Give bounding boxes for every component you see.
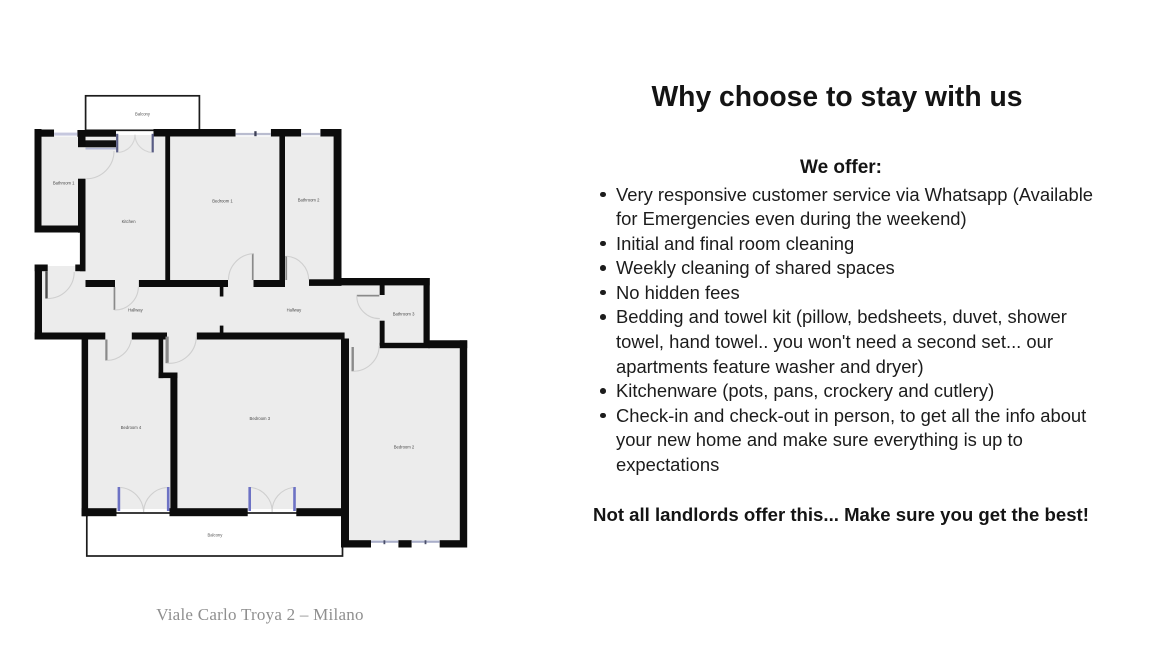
svg-text:Kitchen: Kitchen [122,219,137,224]
svg-text:Balcony: Balcony [207,533,223,538]
svg-text:Balcony: Balcony [135,112,151,117]
svg-text:Bathroom 3: Bathroom 3 [393,312,415,317]
svg-text:Bathroom 1: Bathroom 1 [53,181,75,186]
svg-text:Hallway: Hallway [128,308,144,313]
svg-text:Bedroom 3: Bedroom 3 [250,416,271,421]
svg-text:Hallway: Hallway [287,308,303,313]
svg-text:Bathroom 2: Bathroom 2 [298,198,320,203]
svg-text:Bedroom 1: Bedroom 1 [212,199,233,204]
svg-text:Bedroom 4: Bedroom 4 [121,425,142,430]
svg-text:Bedroom 2: Bedroom 2 [394,445,415,450]
